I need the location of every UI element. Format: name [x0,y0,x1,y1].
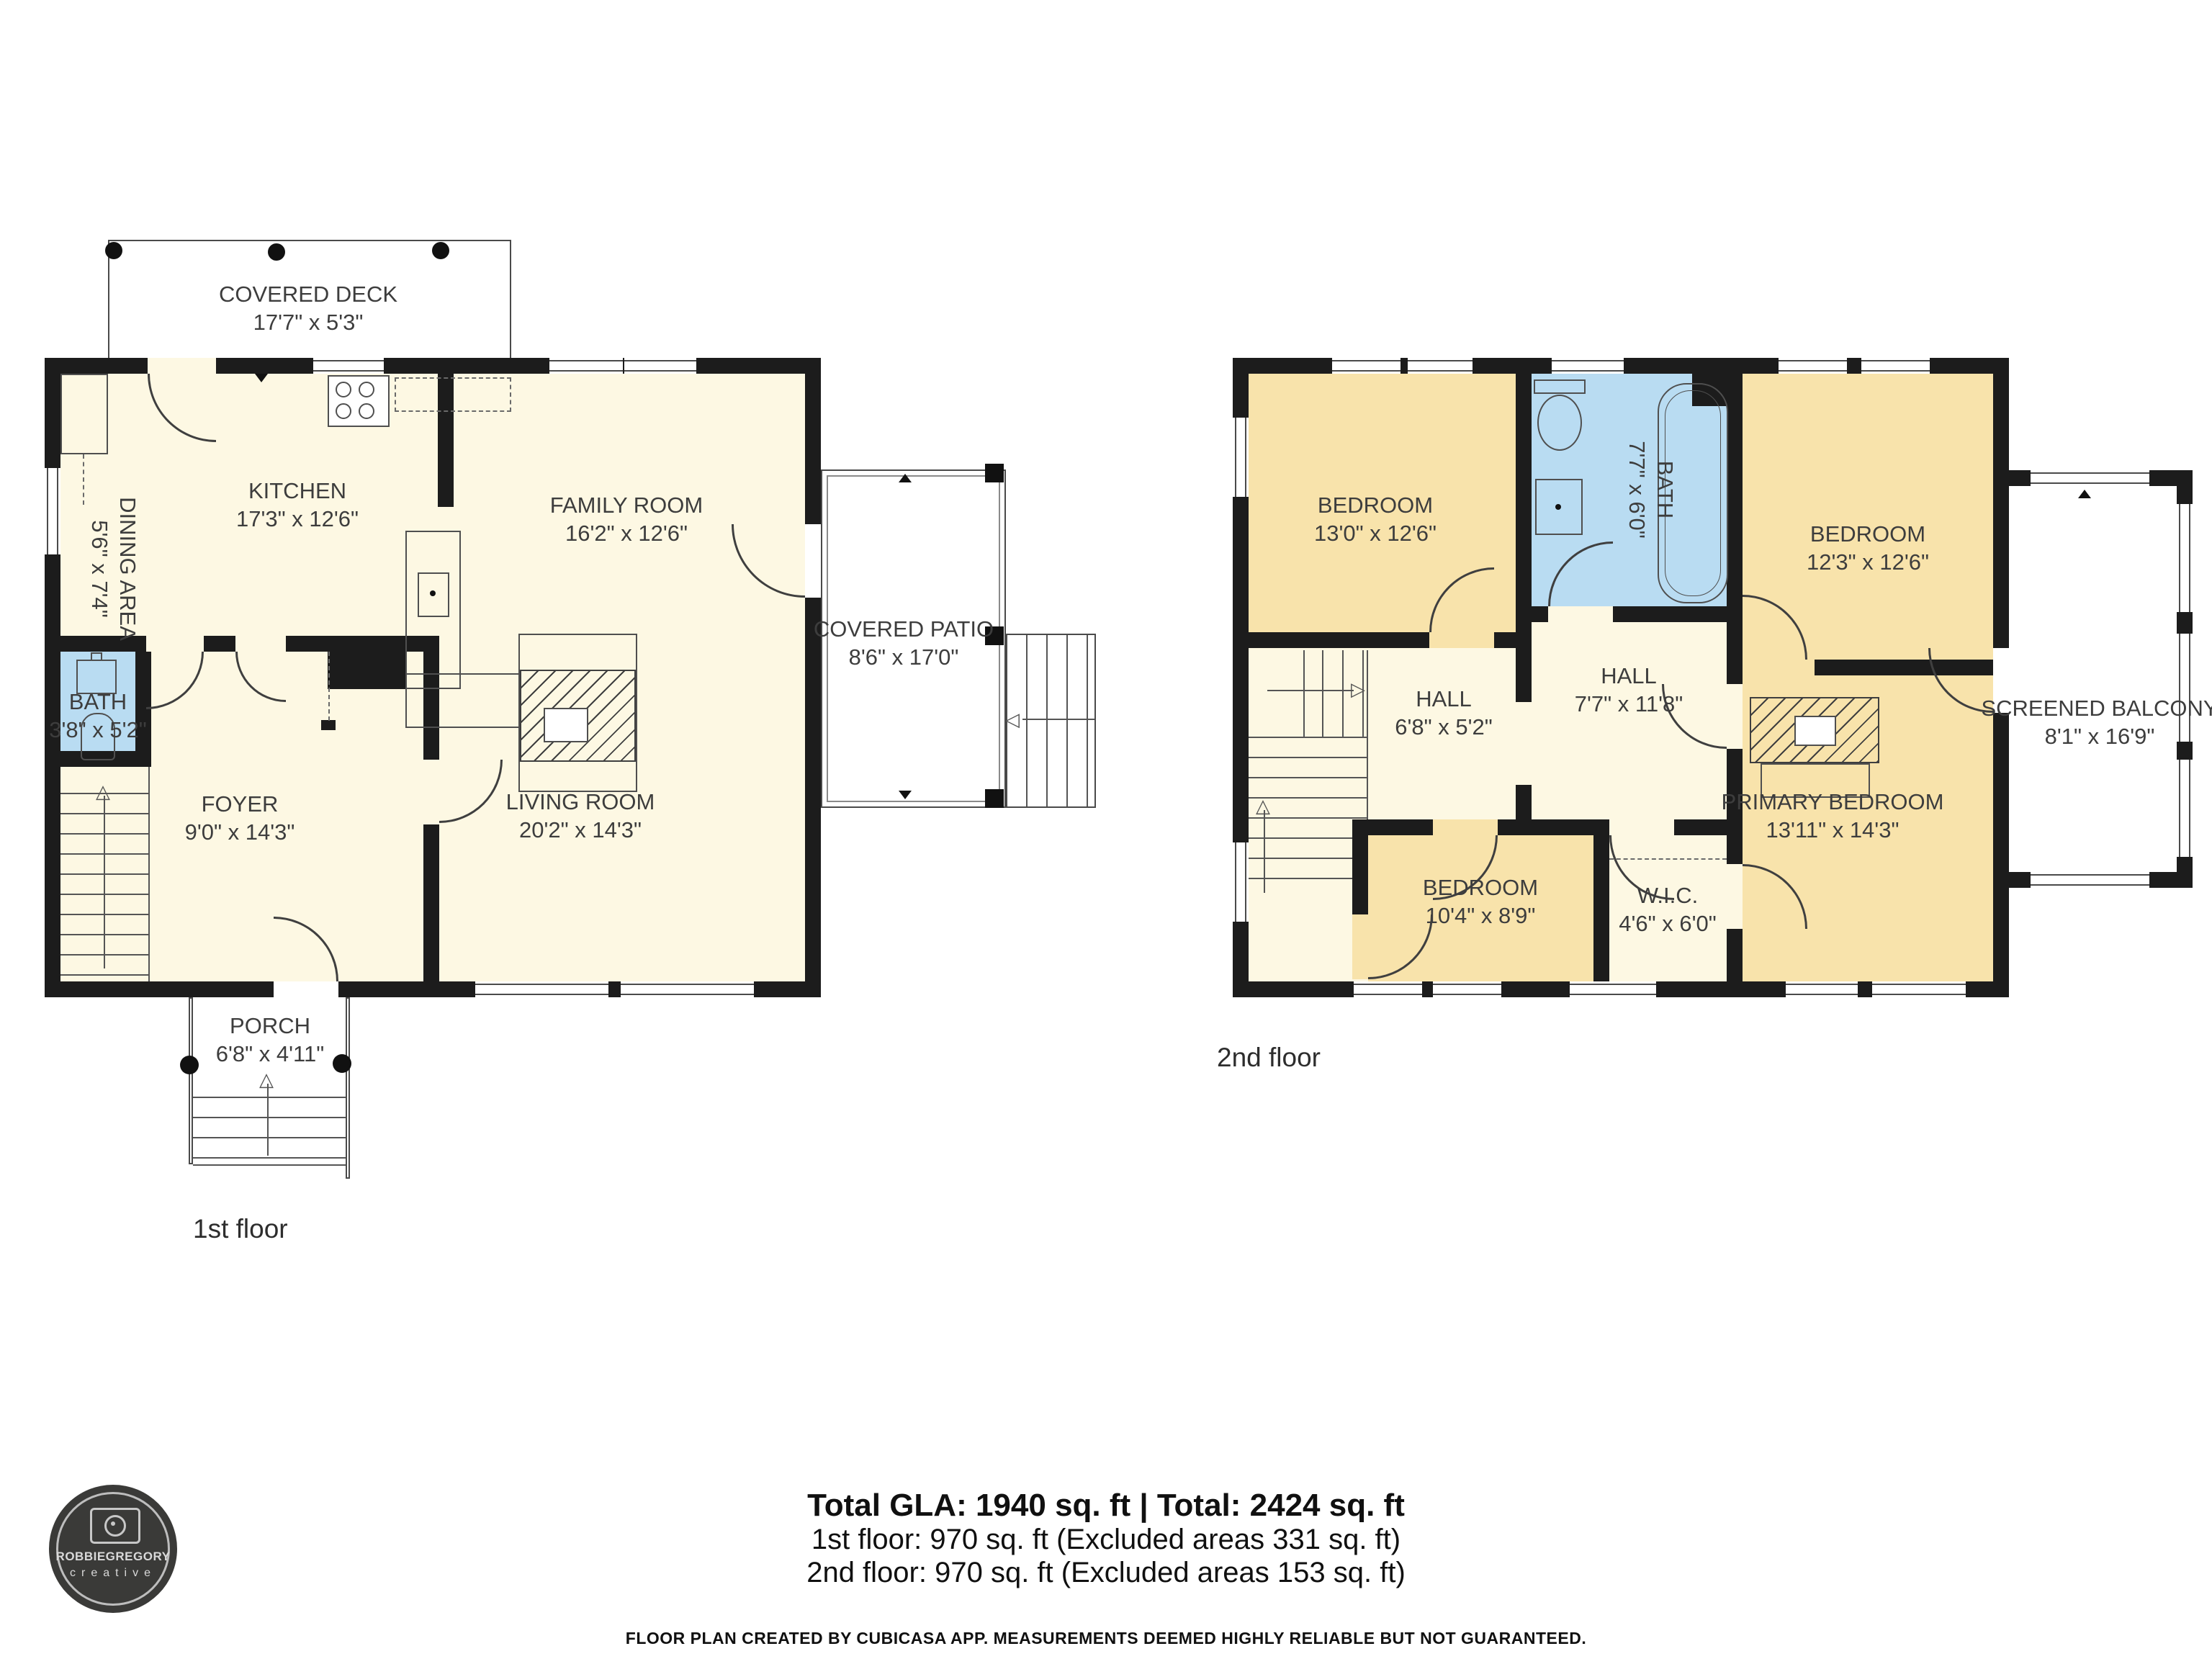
patio-post [985,464,1004,482]
dining-area-label: DINING AREA 5'6" x 7'4" [86,497,142,641]
deck-post [268,243,285,261]
bedroom-3-label: BEDROOM 10'4" x 8'9" [1423,873,1538,930]
covered-deck-label: COVERED DECK 17'7" x 5'3" [219,280,397,336]
porch-arrow-line [267,1084,269,1156]
window [1570,981,1656,997]
window [1552,358,1624,374]
room-dims: 17'7" x 5'3" [219,308,397,336]
fireplace-box [544,708,588,742]
covered-patio-label: COVERED PATIO 8'6" x 17'0" [814,615,994,671]
room-dims: 17'3" x 12'6" [236,505,359,533]
door-opening [1548,606,1613,622]
window [2177,760,2193,857]
patio-arrow-icon [899,791,912,799]
wall [286,636,328,652]
stair-up-arrow: △ [1256,796,1270,815]
window [1354,981,1422,997]
room-name: PRIMARY BEDROOM [1722,788,1944,816]
window [1233,418,1249,497]
porch-post [180,1056,199,1074]
room-name: HALL [1395,685,1493,713]
stair-direction-arrow: ▷ [1351,680,1365,698]
toilet-bowl [1537,395,1582,451]
wall [1532,606,1548,622]
room-dims: 10'4" x 8'9" [1423,902,1538,930]
room-name: HALL [1575,662,1683,690]
room-dims: 5'6" x 7'4" [86,497,114,641]
wall [1593,835,1609,981]
logo-tagline: creative [49,1567,177,1580]
room-dims: 7'7" x 6'0" [1623,441,1651,539]
window [2031,872,2149,888]
screened-balcony-label: SCREENED BALCONY 8'1" x 16'9" [1981,694,2212,750]
front-door-opening [274,981,338,997]
room-dims: 4'6" x 6'0" [1619,909,1717,938]
floor-2-caption: 2nd floor [1217,1043,1321,1073]
wic-label: W.I.C. 4'6" x 6'0" [1619,881,1717,938]
creator-logo: ROBBIEGREGORY creative [49,1485,177,1613]
room-dims: 3'8" x 5'2" [49,716,147,744]
room-dims: 7'7" x 11'8" [1575,690,1683,718]
patio-stair-line [1022,719,1094,720]
room-name: FOYER [185,790,295,818]
room-dims: 16'2" x 12'6" [550,519,703,547]
hall-upper-label: HALL 7'7" x 11'8" [1575,662,1683,718]
room-name: KITCHEN [236,477,359,505]
window [621,981,754,997]
wall [1494,632,1532,648]
stair-arrow-line [104,796,105,968]
window [624,358,696,374]
door-opening [423,760,439,824]
living-room-label: LIVING ROOM 20'2" x 14'3" [506,788,655,844]
stair-boundary [1303,650,1305,738]
room-dims: 8'6" x 17'0" [814,643,994,671]
room-dims: 8'1" x 16'9" [1981,722,2212,750]
logo-name: ROBBIEGREGORY [49,1550,177,1564]
wall [1498,819,1609,835]
wall [423,824,439,981]
bedroom-2-label: BEDROOM 12'3" x 12'6" [1807,520,1929,576]
room-name: COVERED DECK [219,280,397,308]
door-opening [1609,819,1674,835]
room-dims: 6'8" x 5'2" [1395,713,1493,741]
stove-burner [359,403,374,419]
door-opening [1429,632,1494,648]
wall [1516,374,1532,648]
door-opening [1352,914,1368,979]
patio-door-opening [805,524,821,598]
fireplace-box [1794,716,1836,746]
room-dims: 6'8" x 4'11" [216,1040,324,1068]
bath-2-label: BATH 7'7" x 6'0" [1623,441,1679,539]
porch-step-edge [193,1164,346,1166]
room-dims: 12'3" x 12'6" [1807,548,1929,576]
door-opening [1727,684,1743,749]
door-opening [148,358,216,374]
bath-1-label: BATH 3'8" x 5'2" [49,688,147,744]
balcony-arrow-icon [2078,490,2091,498]
door-opening [1727,864,1743,929]
window [1233,842,1249,922]
camera-lens-icon [104,1515,126,1537]
room-name: FAMILY ROOM [550,491,703,519]
upper-cabinet-dash [395,377,511,412]
sink-faucet-dot [430,590,436,596]
stair-up-arrow: △ [259,1070,274,1089]
bedroom-1-label: BEDROOM 13'0" x 12'6" [1314,491,1437,547]
window [1779,358,1847,374]
room-dims: 20'2" x 14'3" [506,816,655,844]
stove [328,375,390,427]
wall-pantry-mass [328,636,407,689]
floor-plan-page: { "colors":{"wall":"#1c1c1c","floor_crea… [0,0,2212,1659]
room-name: PORCH [216,1012,324,1040]
window [45,468,60,554]
room-name: BATH [49,688,147,716]
wall [1727,374,1743,675]
room-name: SCREENED BALCONY [1981,694,2212,722]
door-opening [1433,819,1498,835]
wic-shelf-dash [1609,858,1727,860]
floor2-area-line: 2nd floor: 970 sq. ft (Excluded areas 15… [0,1557,2212,1589]
door-opening [1743,660,1815,675]
stair-up-arrow: △ [96,782,110,801]
wall [1352,819,1433,835]
room-dims: 9'0" x 14'3" [185,818,295,846]
wall-closet-foot [321,720,336,730]
door-arrow-icon [255,374,268,382]
hall-lower-label: HALL 6'8" x 5'2" [1395,685,1493,741]
window [2031,470,2149,486]
window [2177,504,2193,612]
wall [1516,648,1532,702]
foyer-label: FOYER 9'0" x 14'3" [185,790,295,846]
patio-post [985,789,1004,808]
room-name: BEDROOM [1314,491,1437,519]
porch-rail [346,997,350,1179]
room-name: BEDROOM [1807,520,1929,548]
stove-burner [336,403,351,419]
stair-direction-arrow: ◁ [1005,710,1020,729]
stair-arrow-line [1264,810,1265,893]
closet-dash [328,652,330,721]
porch-label: PORCH 6'8" x 4'11" [216,1012,324,1068]
wall [1233,632,1429,648]
room-name: W.I.C. [1619,881,1717,909]
toilet-tank [1534,379,1586,394]
cabinet-dash [83,454,84,505]
stair-boundary [1249,737,1368,738]
window [475,981,608,997]
stove-burner [336,382,351,397]
sink-faucet-dot [1555,504,1561,510]
floor-1-caption: 1st floor [193,1214,288,1244]
wall [805,358,821,997]
window [1433,981,1501,997]
wall [45,358,60,997]
stair-boundary [1367,650,1368,819]
floor1-area-line: 1st floor: 970 sq. ft (Excluded areas 33… [0,1524,2212,1556]
disclaimer-footer: FLOOR PLAN CREATED BY CUBICASA APP. MEAS… [0,1629,2212,1648]
room-name: BATH [1651,441,1679,539]
room-name: DINING AREA [114,497,142,641]
window [313,358,384,374]
wall [1613,606,1743,622]
patio-arrow-icon [899,474,912,482]
window [549,358,623,374]
window [1332,358,1401,374]
stair-boundary [148,767,150,981]
window [1786,981,1858,997]
stove-burner [359,382,374,397]
camera-lens-dot [111,1521,115,1526]
kitchen-label: KITCHEN 17'3" x 12'6" [236,477,359,533]
primary-bedroom-label: PRIMARY BEDROOM 13'11" x 14'3" [1722,788,1944,844]
family-room-label: FAMILY ROOM 16'2" x 12'6" [550,491,703,547]
camera-icon [90,1508,140,1544]
room-dims: 13'0" x 12'6" [1314,519,1437,547]
room-dims: 13'11" x 14'3" [1722,816,1944,844]
cabinet [60,374,108,454]
window [1408,358,1473,374]
bath-faucet [91,652,102,661]
wall [204,636,235,652]
stair-arrow-line [1267,690,1354,691]
room-name: BEDROOM [1423,873,1538,902]
deck-post [432,242,449,259]
deck-post [105,242,122,259]
wall [1352,835,1368,914]
total-gla-line: Total GLA: 1940 sq. ft | Total: 2424 sq.… [0,1488,2212,1524]
porch-post [333,1054,351,1073]
window [1872,981,1966,997]
room-name: COVERED PATIO [814,615,994,643]
porch-steps [193,1078,346,1166]
window [1861,358,1930,374]
room-name: LIVING ROOM [506,788,655,816]
